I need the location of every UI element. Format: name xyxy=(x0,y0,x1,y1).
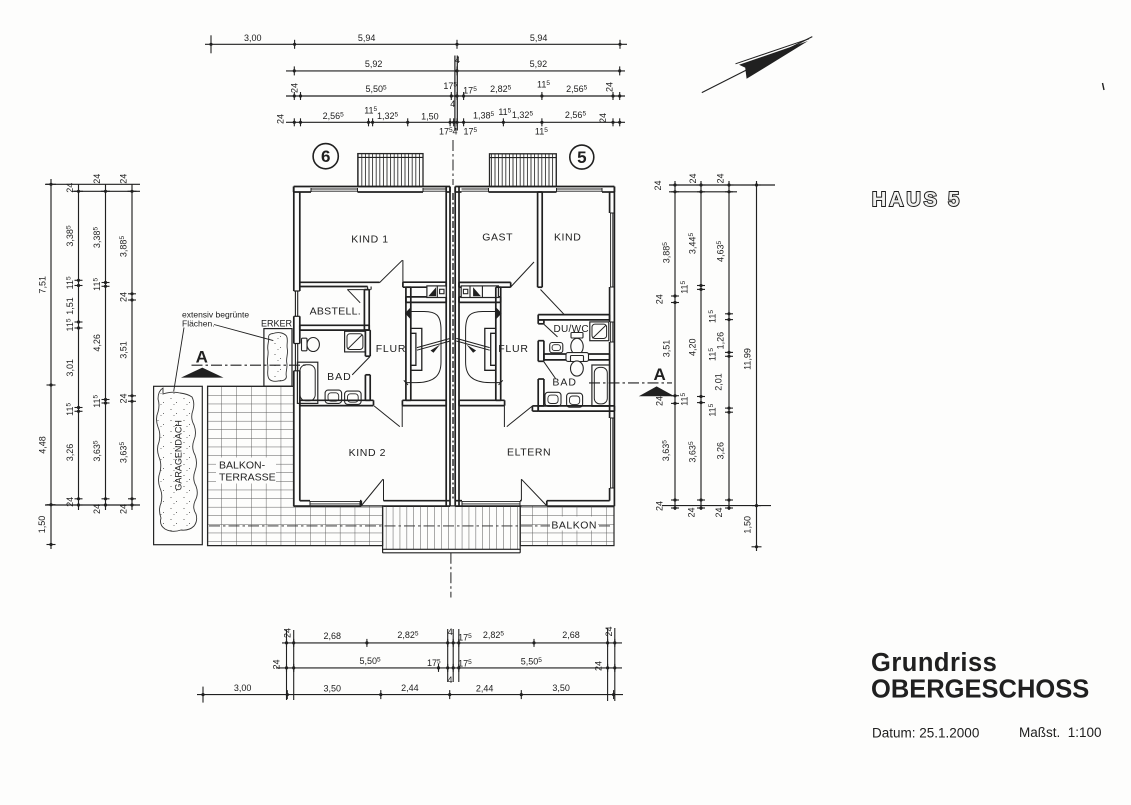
svg-text:3,51: 3,51 xyxy=(119,341,129,359)
svg-text:1,50: 1,50 xyxy=(421,112,439,122)
svg-text:BALKON: BALKON xyxy=(551,519,597,531)
svg-text:24: 24 xyxy=(119,393,129,403)
svg-text:4,20: 4,20 xyxy=(688,338,698,356)
svg-text:1,50: 1,50 xyxy=(37,516,47,534)
svg-text:4,48: 4,48 xyxy=(38,436,48,454)
svg-text:24: 24 xyxy=(594,661,604,671)
svg-text:24: 24 xyxy=(688,173,698,183)
svg-text:24: 24 xyxy=(716,173,726,183)
svg-text:Maßst. 1:100: Maßst. 1:100 xyxy=(1019,725,1102,740)
svg-text:BAD: BAD xyxy=(327,371,352,383)
svg-text:4,26: 4,26 xyxy=(92,334,102,352)
svg-text:1,51: 1,51 xyxy=(65,297,75,315)
svg-text:1,50: 1,50 xyxy=(743,516,753,534)
svg-text:3,00: 3,00 xyxy=(244,33,262,43)
svg-text:11,99: 11,99 xyxy=(743,348,753,370)
svg-text:4: 4 xyxy=(448,627,453,637)
svg-text:24: 24 xyxy=(654,396,664,406)
svg-text:ERKER: ERKER xyxy=(261,319,293,329)
svg-text:4: 4 xyxy=(455,55,460,65)
svg-text:24: 24 xyxy=(282,628,292,638)
svg-text:ELTERN: ELTERN xyxy=(507,447,551,459)
svg-text:6: 6 xyxy=(321,147,330,166)
svg-text:FLUR: FLUR xyxy=(376,343,407,355)
svg-text:7,51: 7,51 xyxy=(38,276,48,294)
svg-text:KIND: KIND xyxy=(554,232,582,244)
svg-text:Grundriss: Grundriss xyxy=(871,649,997,677)
svg-text:24: 24 xyxy=(276,114,286,124)
svg-text:1,26: 1,26 xyxy=(716,332,726,350)
svg-text:24: 24 xyxy=(604,626,614,636)
svg-text:A: A xyxy=(654,365,666,384)
svg-text:5,92: 5,92 xyxy=(530,59,548,69)
svg-text:HAUS 5: HAUS 5 xyxy=(872,189,962,211)
svg-text:24: 24 xyxy=(598,113,608,123)
svg-text:A: A xyxy=(196,348,208,367)
svg-text:Datum: 25.1.2000: Datum: 25.1.2000 xyxy=(872,726,979,741)
svg-text:ABSTELL.: ABSTELL. xyxy=(310,306,361,318)
svg-text:24: 24 xyxy=(714,507,724,517)
svg-text:5,94: 5,94 xyxy=(530,33,548,43)
svg-text:2,44: 2,44 xyxy=(401,683,419,693)
svg-text:5: 5 xyxy=(577,148,586,167)
svg-text:5,94: 5,94 xyxy=(358,33,376,43)
svg-text:2,68: 2,68 xyxy=(324,631,342,641)
svg-text:3,50: 3,50 xyxy=(552,683,570,693)
svg-text:24: 24 xyxy=(654,294,664,304)
svg-text:2,44: 2,44 xyxy=(476,684,494,694)
svg-text:4: 4 xyxy=(452,127,457,137)
svg-text:KIND 2: KIND 2 xyxy=(349,447,386,459)
svg-text:24: 24 xyxy=(687,507,697,517)
svg-text:24: 24 xyxy=(605,82,615,92)
svg-text:KIND 1: KIND 1 xyxy=(351,234,388,246)
svg-text:2,68: 2,68 xyxy=(562,630,580,640)
svg-text:3,00: 3,00 xyxy=(234,683,252,693)
svg-text:3,51: 3,51 xyxy=(662,340,672,358)
svg-text:24: 24 xyxy=(653,180,663,190)
svg-text:3,01: 3,01 xyxy=(65,359,75,377)
svg-text:24: 24 xyxy=(289,83,299,93)
svg-text:24: 24 xyxy=(92,174,102,184)
svg-text:OBERGESCHOSS: OBERGESCHOSS xyxy=(871,676,1089,704)
svg-text:24: 24 xyxy=(119,292,129,302)
svg-text:BALKON-: BALKON- xyxy=(219,460,266,472)
svg-text:24: 24 xyxy=(119,174,129,184)
svg-text:3,26: 3,26 xyxy=(65,444,75,462)
svg-text:GAST: GAST xyxy=(482,232,513,244)
svg-text:3,26: 3,26 xyxy=(716,442,726,460)
svg-text:4: 4 xyxy=(450,99,455,109)
svg-text:BAD: BAD xyxy=(552,377,577,389)
svg-text:2,01: 2,01 xyxy=(714,373,724,391)
svg-text:GARAGENDACH: GARAGENDACH xyxy=(174,420,184,491)
svg-text:Flächen.: Flächen. xyxy=(182,319,215,329)
svg-text:3,50: 3,50 xyxy=(324,684,342,694)
svg-text:TERRASSE: TERRASSE xyxy=(219,472,276,484)
svg-text:5,92: 5,92 xyxy=(365,59,383,69)
svg-text:24: 24 xyxy=(271,659,281,669)
svg-text:FLUR: FLUR xyxy=(498,343,529,355)
